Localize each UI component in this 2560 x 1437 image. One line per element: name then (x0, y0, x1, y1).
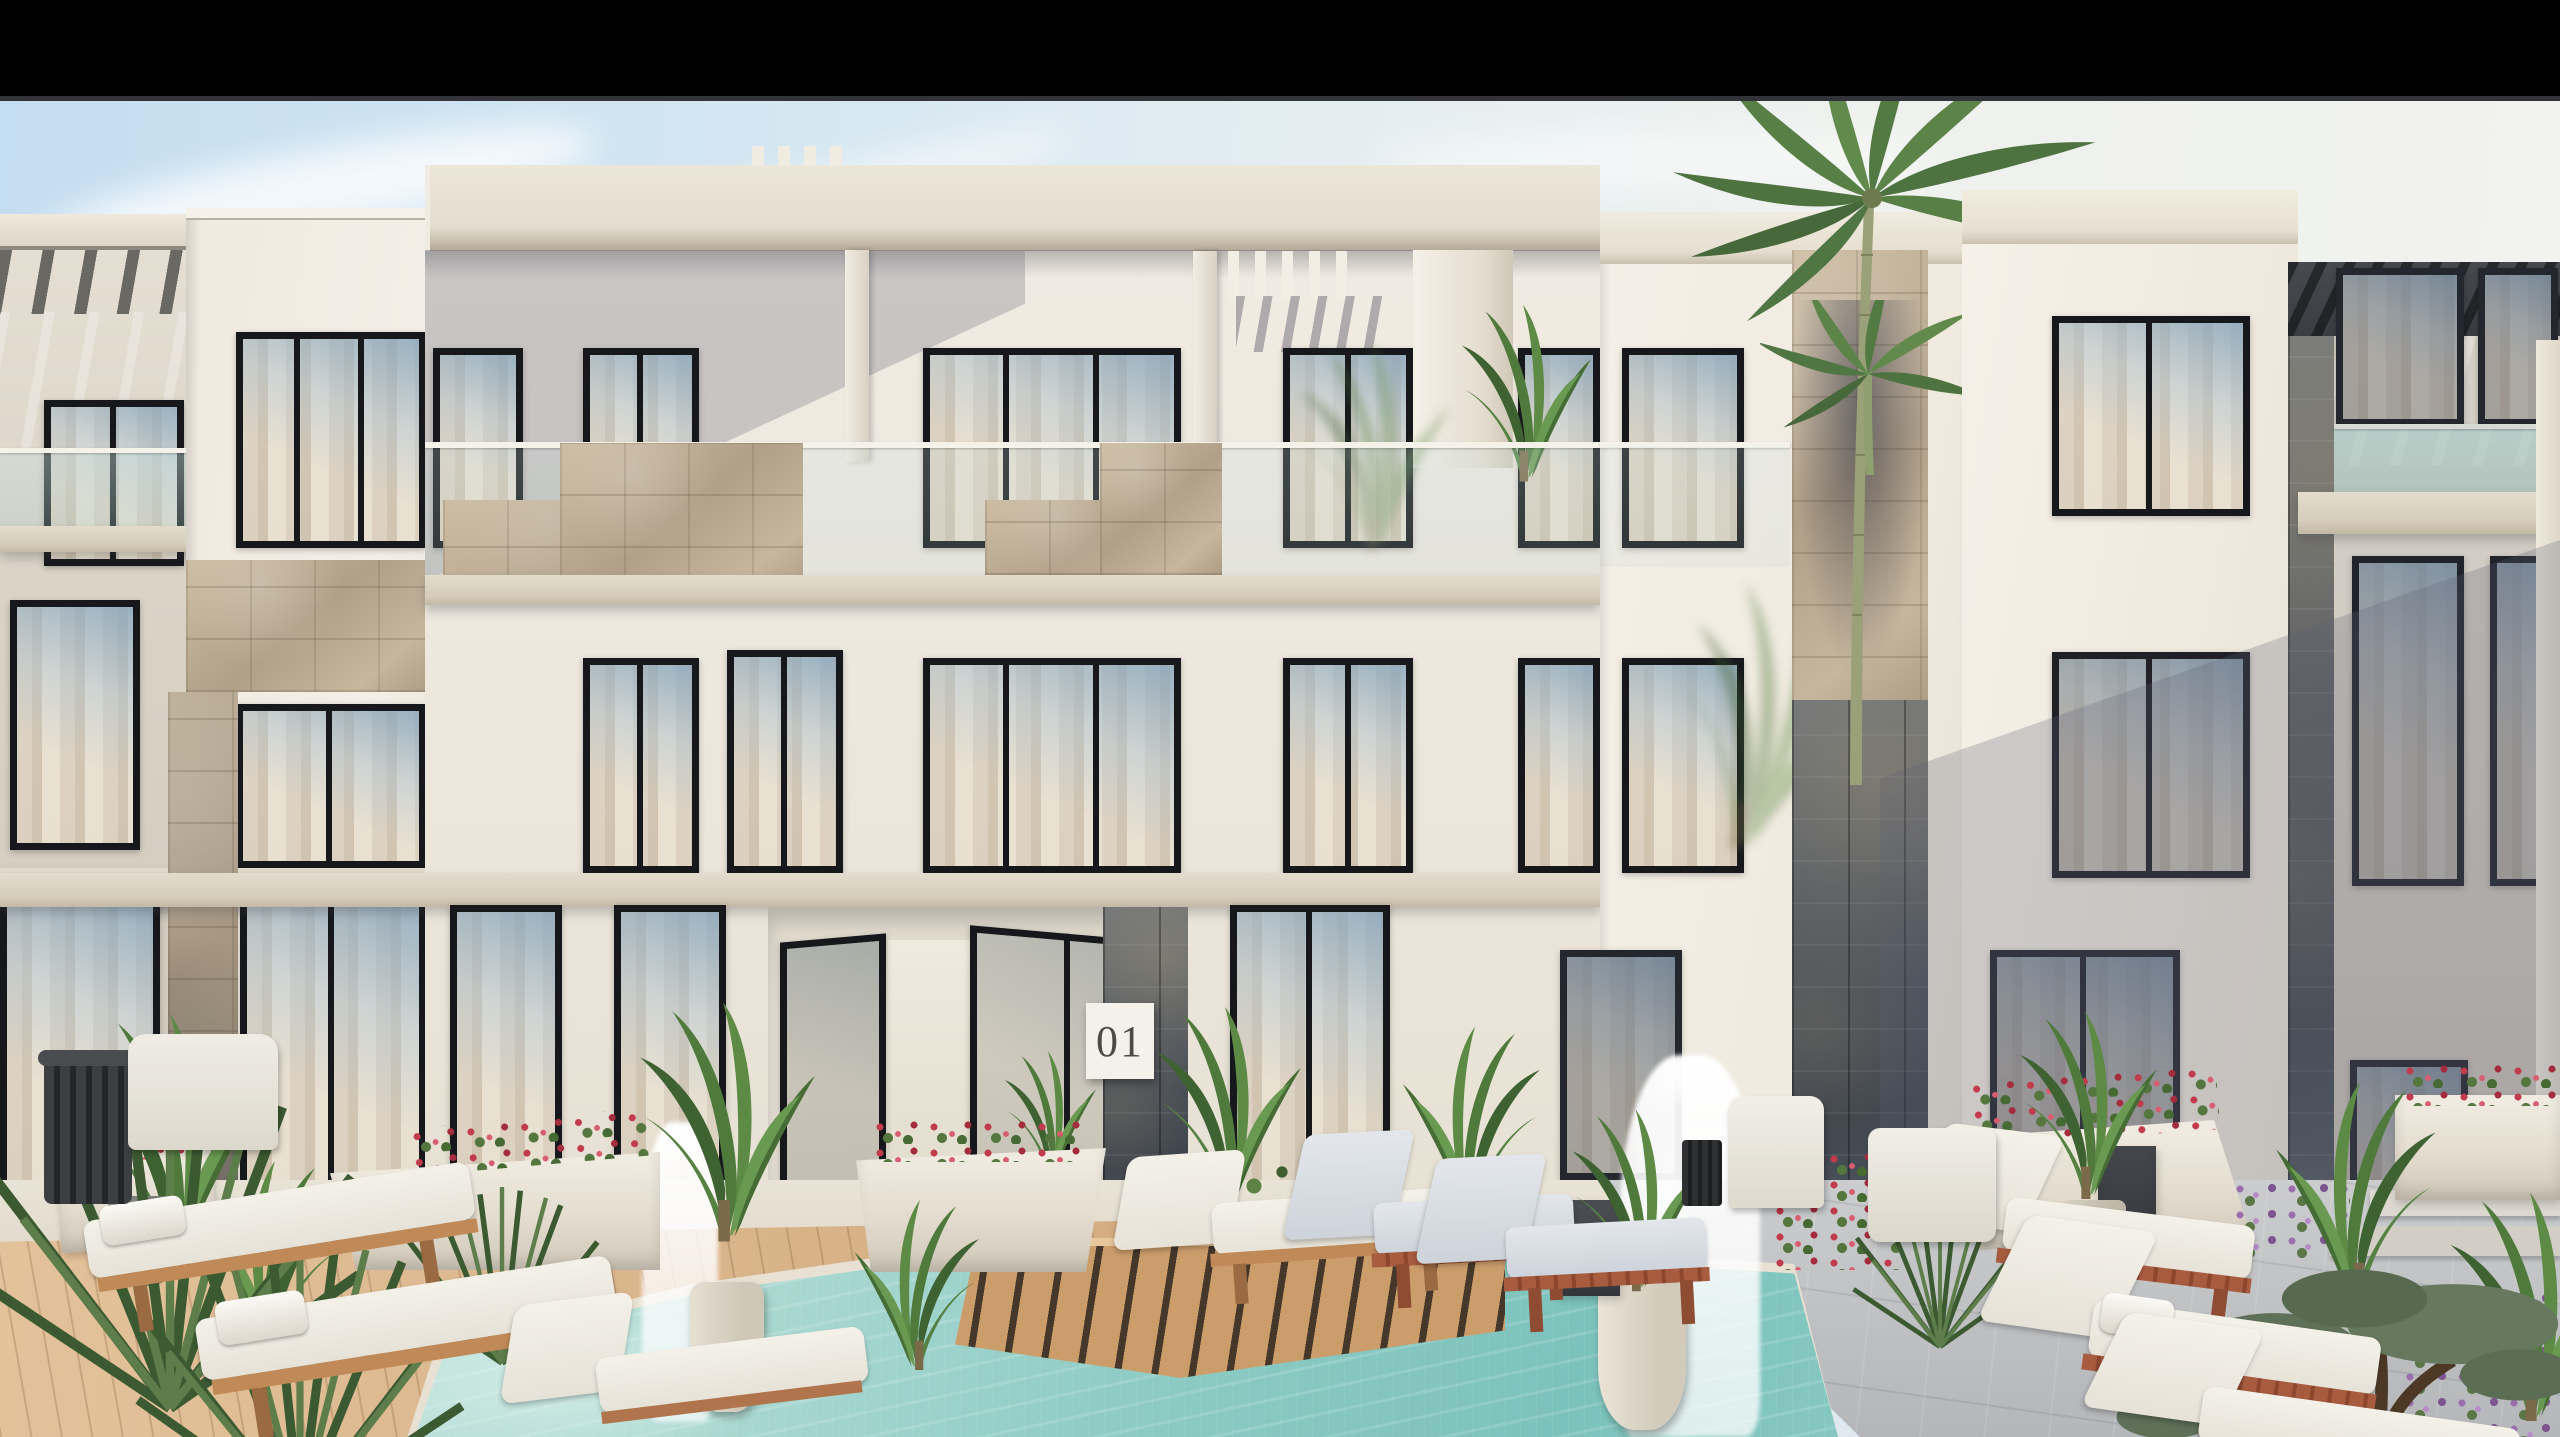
left-volume-stone-band (186, 560, 432, 692)
window-f2 (727, 650, 843, 873)
low-slab (0, 873, 1600, 907)
armchair-white (1728, 1096, 1824, 1208)
roof-fins (752, 146, 852, 166)
terrace-window (2336, 268, 2464, 426)
facade-pier (845, 250, 869, 462)
side-table-black (1682, 1140, 1722, 1206)
plant-banana (608, 950, 838, 1280)
central-fascia (430, 165, 1600, 251)
side-table-slatted (44, 1058, 132, 1204)
left-wing-balcony-rail (0, 448, 190, 453)
left-wing-balcony-glass (0, 452, 190, 526)
mid-slab (425, 575, 1600, 605)
left-pergola-slats (0, 250, 190, 314)
terrace-balustrade-rail (2334, 424, 2560, 429)
window-mullion (326, 704, 332, 868)
pergola-fins (1228, 251, 1352, 299)
window-mullion (294, 332, 300, 548)
right-wing-fascia (1962, 190, 2298, 244)
window-f2 (1283, 658, 1413, 873)
left-volume-window-f3 (236, 332, 426, 548)
architectural-render-scene: 01 (0, 0, 2560, 1437)
terrace-slab (2298, 492, 2560, 534)
window-mullion (358, 332, 364, 548)
side-table-top (38, 1050, 138, 1066)
window-f2 (923, 658, 1181, 873)
left-volume-parapet-edge (186, 208, 432, 220)
armchair-white (128, 1034, 278, 1150)
terrace-balustrade (2334, 428, 2560, 492)
left-wing-balcony-slab (0, 526, 190, 552)
bench-white (1868, 1128, 1996, 1242)
small-palm (1760, 300, 1980, 480)
left-wing-parapet (0, 214, 196, 250)
window-glass (17, 607, 133, 843)
red-flowers (870, 1118, 1090, 1162)
window-f2 (583, 658, 699, 873)
letterbox-top (0, 0, 2560, 101)
rw-window-f3 (2052, 316, 2250, 516)
window-f2 (1518, 658, 1600, 873)
left-wing-lower-window (10, 600, 140, 850)
window-glass (243, 339, 419, 541)
platform-lounger-terracotta (1417, 1144, 1727, 1349)
balcony-stone-parapet (1100, 443, 1222, 575)
facade-pier (1193, 251, 1217, 461)
left-volume-window-f2 (236, 704, 426, 868)
